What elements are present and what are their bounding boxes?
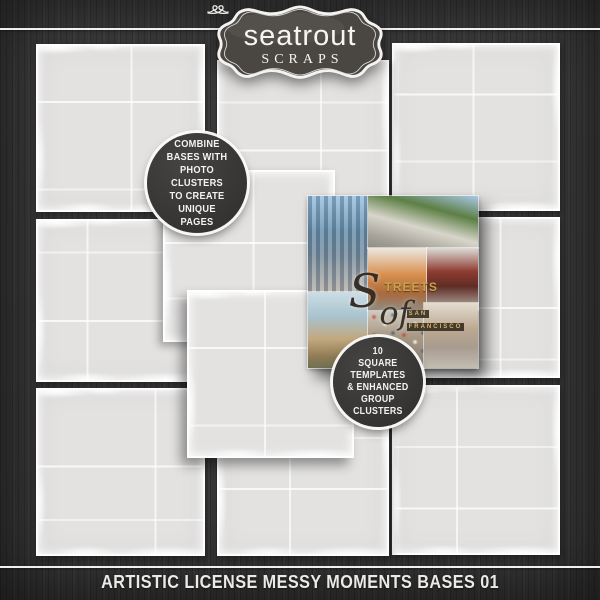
brand-logo-text: seatrout SCRAPS: [207, 4, 393, 84]
badge-line: & ENHANCED: [347, 382, 408, 394]
badge-line: TO CREATE: [153, 190, 241, 203]
product-cover: S TREETS of SAN FRANCISCO COMBINE BASES …: [0, 0, 600, 600]
badge-line: PAGES: [153, 216, 241, 229]
photo-tile-cablecar-hill: [368, 196, 479, 248]
info-badge-contents-text: 10 SQUARE TEMPLATES & ENHANCED GROUP CLU…: [347, 346, 408, 418]
footer: ARTISTIC LICENSE MESSY MOMENTS BASES 01: [0, 572, 600, 593]
badge-line: SQUARE: [347, 358, 408, 370]
badge-line: COMBINE: [153, 138, 241, 151]
badge-line: 10: [347, 346, 408, 358]
brand-name: seatrout: [244, 22, 357, 50]
template-square-right-1: [392, 43, 560, 211]
bottom-divider-line: [0, 566, 600, 568]
info-badge-combine-text: COMBINE BASES WITH PHOTO CLUSTERS TO CRE…: [153, 138, 241, 229]
badge-line: UNIQUE: [153, 203, 241, 216]
badge-line: CLUSTERS: [347, 406, 408, 418]
photo-tile-skyline: [308, 196, 368, 292]
badge-line: BASES WITH: [153, 151, 241, 164]
brand-subname: SCRAPS: [256, 52, 343, 68]
template-square-left-3: [36, 388, 205, 556]
badge-line: PHOTO CLUSTERS: [153, 164, 241, 190]
brand-logo-plaque: seatrout SCRAPS: [207, 4, 393, 84]
badge-line: TEMPLATES: [347, 370, 408, 382]
photo-tile-cablecar-close: [427, 248, 478, 310]
badge-line: GROUP: [347, 394, 408, 406]
product-title: ARTISTIC LICENSE MESSY MOMENTS BASES 01: [101, 572, 499, 593]
info-badge-contents: 10 SQUARE TEMPLATES & ENHANCED GROUP CLU…: [333, 337, 423, 427]
photo-tile-warm-street: [368, 248, 428, 312]
flourish-right-icon: [207, 4, 229, 16]
photo-tile-street-canyon: [424, 303, 478, 368]
info-badge-combine: COMBINE BASES WITH PHOTO CLUSTERS TO CRE…: [147, 133, 247, 233]
template-square-right-3: [392, 385, 560, 555]
